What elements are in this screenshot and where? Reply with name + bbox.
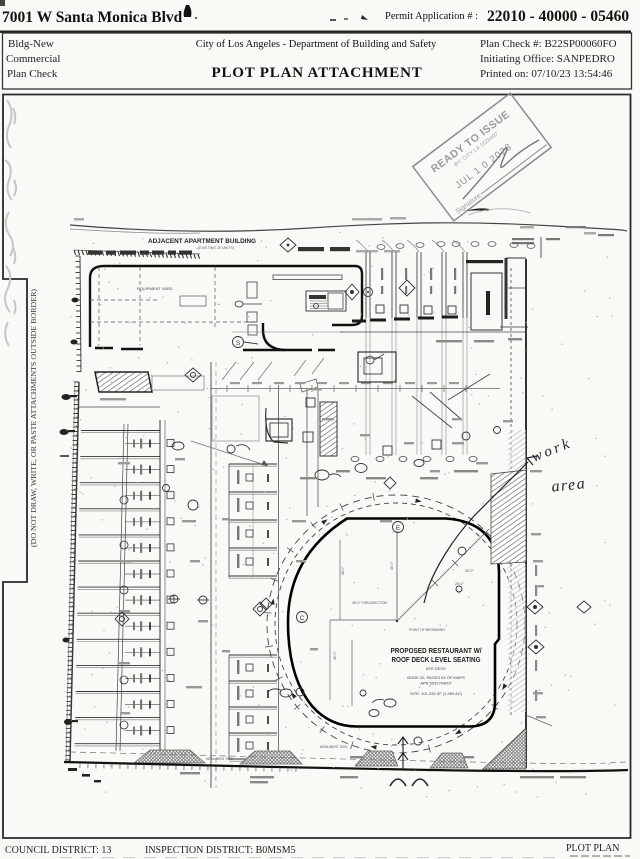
svg-text:30′-0″: 30′-0″ <box>465 569 474 573</box>
svg-text:S: S <box>236 340 241 347</box>
svg-text:20′-0″: 20′-0″ <box>455 582 464 586</box>
svg-text:ADJACENT APARTMENT BUILDING: ADJACENT APARTMENT BUILDING <box>148 238 256 245</box>
svg-text:City of Los Angeles - Departme: City of Los Angeles - Department of Buil… <box>196 39 437 50</box>
svg-text:PLOT PLAN: PLOT PLAN <box>566 843 619 854</box>
svg-text:Printed on: 07/10/23 13:54:46: Printed on: 07/10/23 13:54:46 <box>480 68 613 80</box>
svg-text:PROPOSED RESTAURANT W/: PROPOSED RESTAURANT W/ <box>391 648 482 655</box>
svg-text:C: C <box>300 615 305 622</box>
svg-text:EQUIPMENT YARD: EQUIPMENT YARD <box>137 286 173 291</box>
svg-text:POINT OF BEGINNING: POINT OF BEGINNING <box>409 628 445 632</box>
svg-text:ROOF DECK LEVEL SEATING: ROOF DECK LEVEL SEATING <box>392 657 481 664</box>
svg-text:COUNCIL DISTRICT: 13: COUNCIL DISTRICT: 13 <box>5 845 111 856</box>
svg-text:Commercial: Commercial <box>6 53 60 65</box>
svg-text:Permit Application # :: Permit Application # : <box>385 11 478 22</box>
svg-text:BOOK 20, PAGES 84 OF MAPS: BOOK 20, PAGES 84 OF MAPS <box>407 675 465 680</box>
svg-text:area: area <box>551 475 587 496</box>
svg-text:(EXISTING 20 UNITS): (EXISTING 20 UNITS) <box>198 246 234 250</box>
svg-text:7001 W Santa Monica Blvd: 7001 W Santa Monica Blvd <box>2 9 183 26</box>
svg-text:INSPECTION DISTRICT: B0MSM5: INSPECTION DISTRICT: B0MSM5 <box>145 845 296 856</box>
svg-text:PLOT PLAN ATTACHMENT: PLOT PLAN ATTACHMENT <box>211 65 422 81</box>
svg-text:36′-0″: 36′-0″ <box>390 561 394 570</box>
svg-text:MONUMENT SIGN: MONUMENT SIGN <box>206 757 234 761</box>
svg-text:45′-0″: 45′-0″ <box>333 651 337 660</box>
svg-text:Plan Check #: B22SP00060FO: Plan Check #: B22SP00060FO <box>480 38 617 50</box>
svg-text:(DO NOT DRAW, WRITE, OR PASTE: (DO NOT DRAW, WRITE, OR PASTE ATTACHMENT… <box>29 288 38 547</box>
svg-text:Bldg-New: Bldg-New <box>8 38 54 50</box>
svg-text:NTE DECK: NTE DECK <box>426 666 447 671</box>
svg-text:Plan Check: Plan Check <box>7 68 58 80</box>
svg-text:48′-0″ THRU/SECTION: 48′-0″ THRU/SECTION <box>352 601 387 605</box>
svg-text:Initiating Office: SANPEDRO: Initiating Office: SANPEDRO <box>480 53 615 65</box>
svg-text:SITE: 101,226 SF (1.960 AC): SITE: 101,226 SF (1.960 AC) <box>410 691 463 696</box>
svg-text:MONUMENT SIGN: MONUMENT SIGN <box>320 745 348 749</box>
svg-text:22010 - 40000 - 05460: 22010 - 40000 - 05460 <box>487 8 629 25</box>
svg-text:E: E <box>396 525 401 532</box>
svg-text:38′-0″: 38′-0″ <box>341 566 345 575</box>
svg-text:APN 5532794007: APN 5532794007 <box>420 681 452 686</box>
